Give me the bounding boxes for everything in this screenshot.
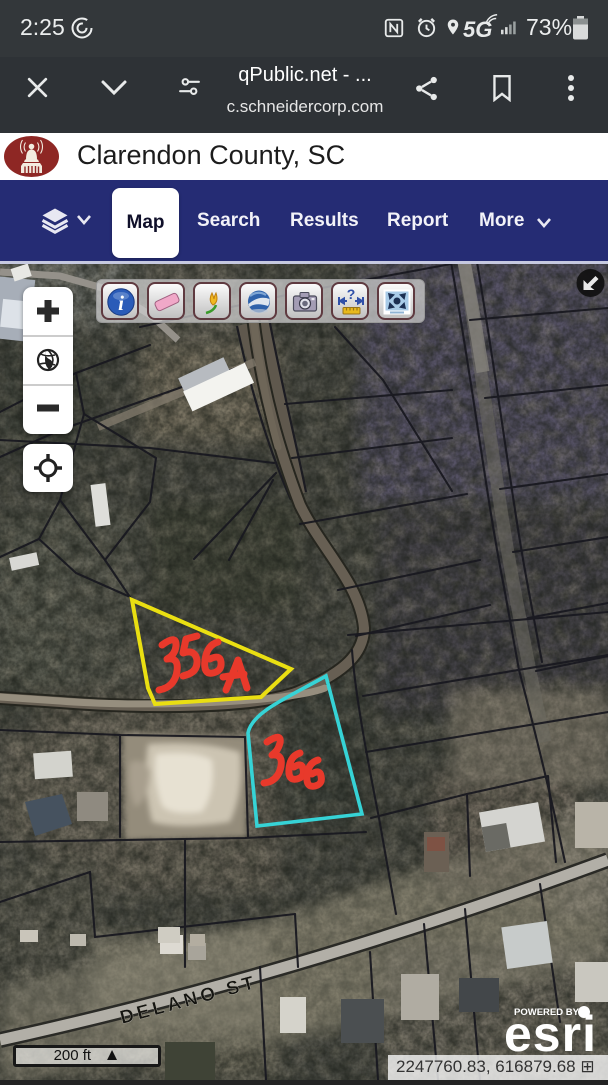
svg-text:?: ?: [346, 287, 355, 302]
svg-text:i: i: [118, 291, 124, 315]
